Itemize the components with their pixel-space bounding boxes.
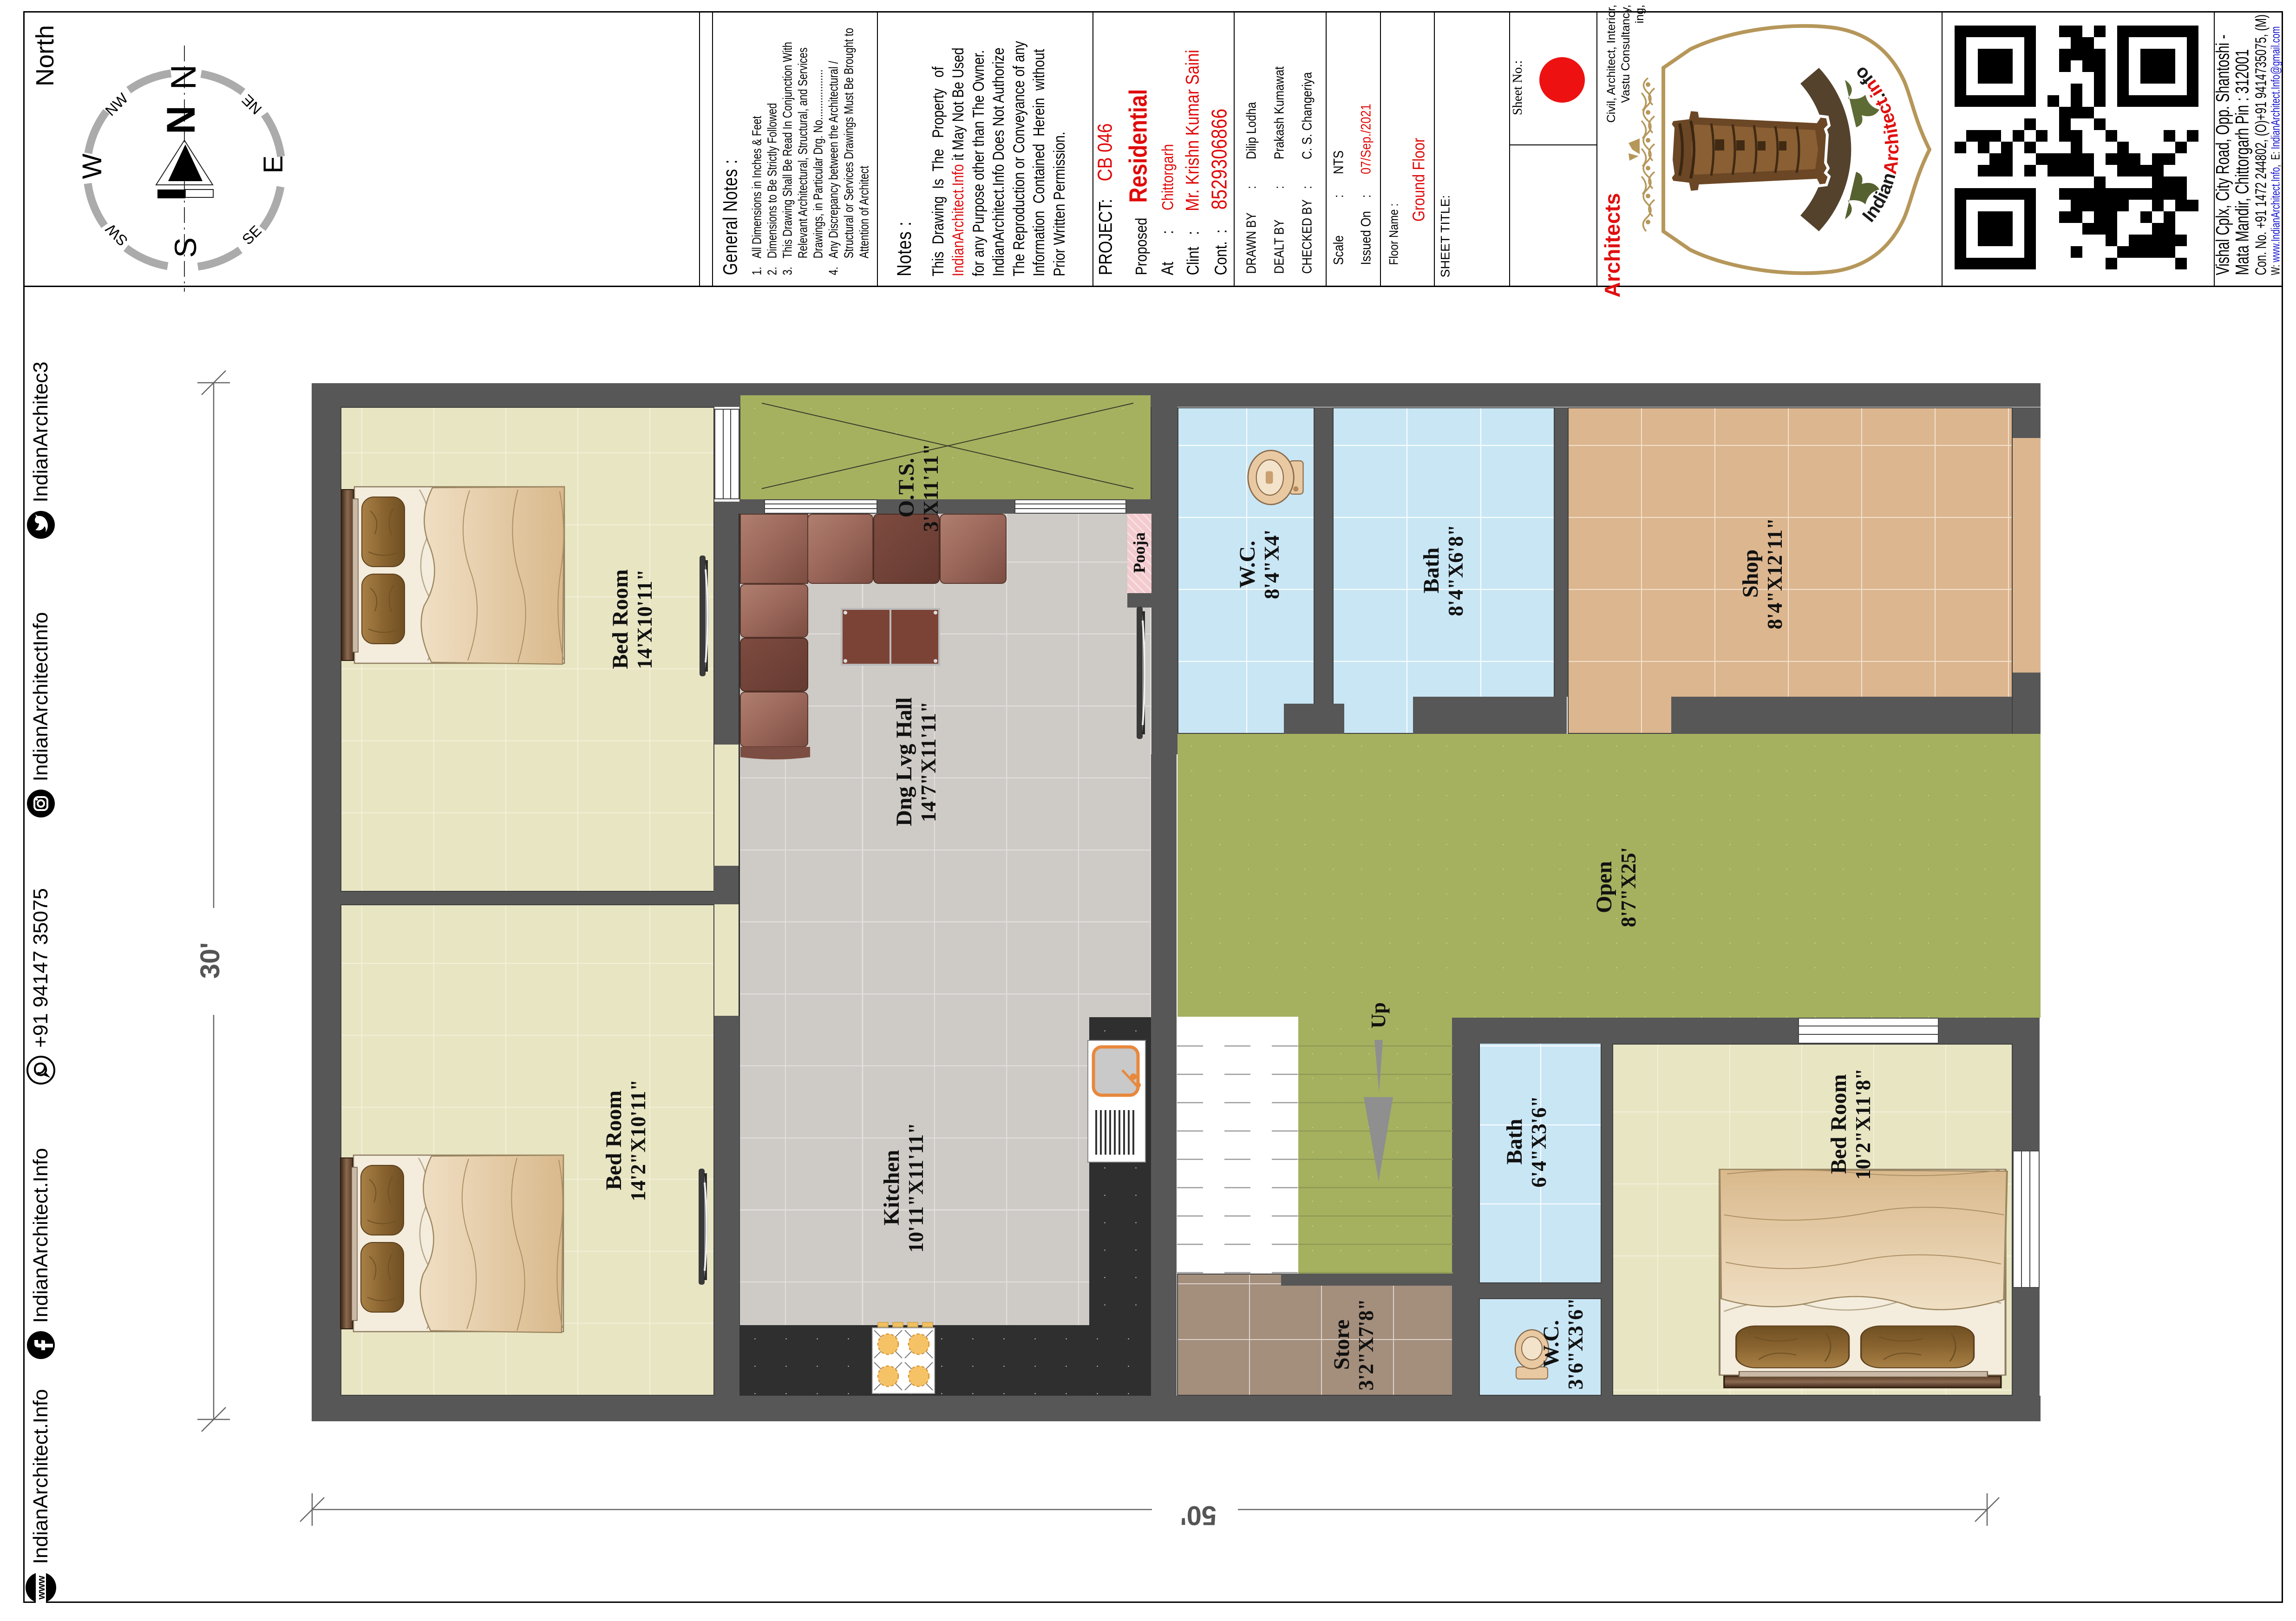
svg-text:W: W	[77, 153, 107, 179]
svg-text:N: N	[164, 65, 203, 90]
svg-text:E: E	[258, 156, 288, 174]
svg-text:NE: NE	[239, 92, 265, 118]
svg-text:IndianArchitect.info: IndianArchitect.info	[1851, 62, 1903, 226]
svg-text:SW: SW	[102, 220, 131, 249]
svg-text:N: N	[159, 105, 203, 134]
svg-text:www: www	[35, 1575, 47, 1600]
svg-text:S: S	[168, 237, 203, 258]
